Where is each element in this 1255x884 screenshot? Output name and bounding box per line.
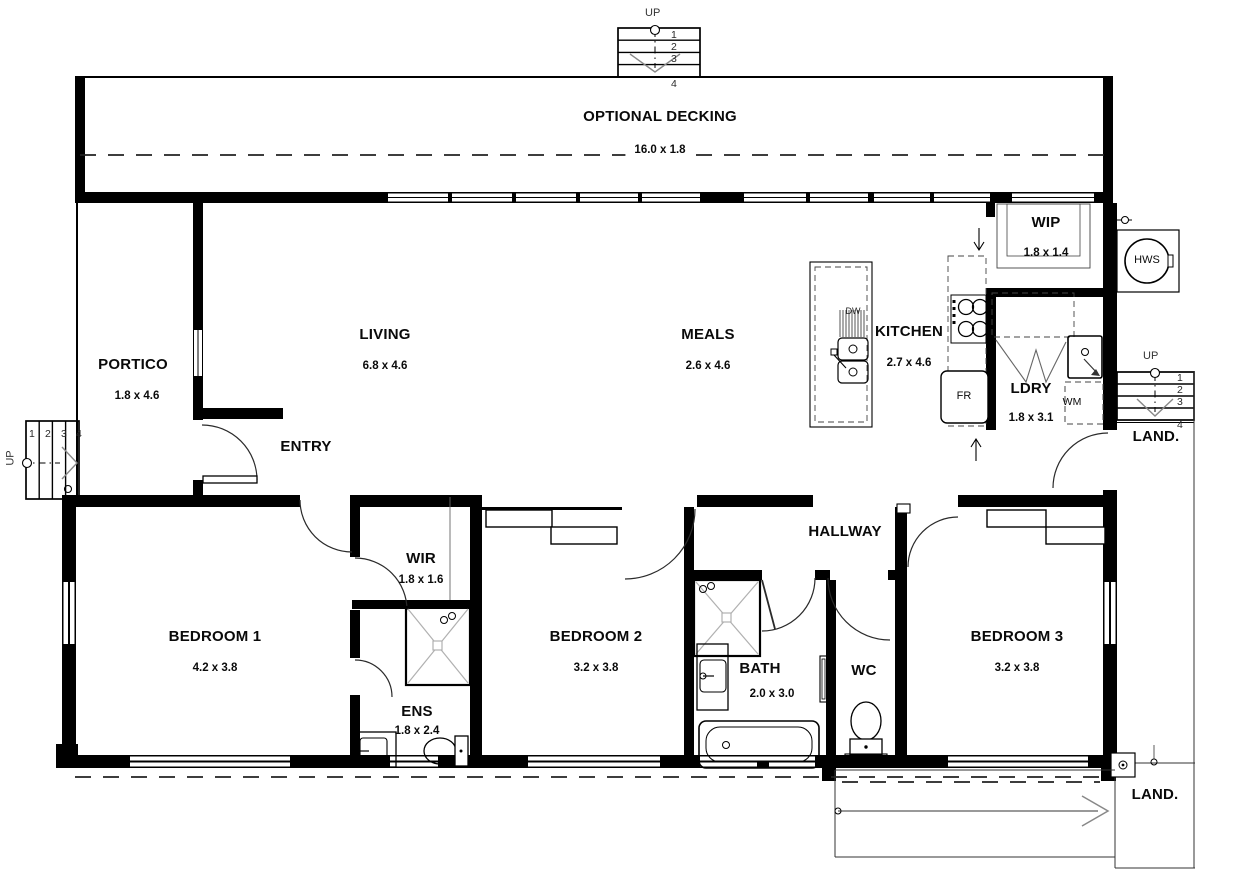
room-dims-bath: 2.0 x 3.0 xyxy=(750,688,795,700)
toilet-wc xyxy=(845,702,887,761)
stairs-right-up-label: UP xyxy=(1143,350,1158,362)
landing-label-bottom: LAND. xyxy=(1132,786,1179,803)
room-label-living: LIVING xyxy=(359,326,410,343)
room-label-ens: ENS xyxy=(401,703,432,720)
room-label-bedroom3: BEDROOM 3 xyxy=(971,628,1064,645)
deck-dims: 16.0 x 1.8 xyxy=(625,144,694,156)
room-label-hallway: HALLWAY xyxy=(808,523,881,540)
room-label-ldry: LDRY xyxy=(1010,380,1051,397)
door-arc-entry xyxy=(202,425,257,483)
stairs-left-step: 4 xyxy=(76,428,82,440)
hanging-rail-icon xyxy=(996,340,1066,382)
vanity-ens xyxy=(354,732,396,767)
stairs-right-step: 2 xyxy=(1177,384,1183,396)
cooktop-icon xyxy=(951,295,988,343)
ramp xyxy=(835,770,1115,857)
ldry-cupboard xyxy=(992,293,1074,337)
stairs-left-step: 1 xyxy=(29,428,35,440)
room-label-entry: ENTRY xyxy=(280,438,331,455)
door-arc-wc xyxy=(828,578,890,640)
floor-plan: OPTIONAL DECKING 16.0 x 1.8 PORTICO 1.8 … xyxy=(0,0,1255,884)
stairs-left-step: 2 xyxy=(45,428,51,440)
room-dims-wip: 1.8 x 1.4 xyxy=(1024,247,1069,259)
towel-rail xyxy=(820,656,827,702)
stairs-top-glyph xyxy=(618,26,700,78)
flow-arrow-down-icon xyxy=(974,228,984,250)
stairs-top-step: 4 xyxy=(671,78,677,90)
stairs-top-step: 2 xyxy=(671,41,677,53)
room-label-portico: PORTICO xyxy=(98,356,168,373)
dishwasher-label: DW xyxy=(846,306,861,316)
shower-ens xyxy=(406,607,470,685)
deck-label: OPTIONAL DECKING xyxy=(583,108,737,125)
stairs-top-up-label: UP xyxy=(645,7,660,19)
toilet-ens xyxy=(424,736,468,766)
door-arc-bedroom3 xyxy=(897,504,958,567)
room-label-kitchen: KITCHEN xyxy=(875,323,943,340)
room-dims-living: 6.8 x 4.6 xyxy=(363,360,408,372)
stairs-right-step: 3 xyxy=(1177,396,1183,408)
stairs-right-step: 4 xyxy=(1177,419,1183,431)
door-arc-bedroom2 xyxy=(625,509,695,579)
laundry-tub-icon xyxy=(1068,336,1102,378)
room-dims-ldry: 1.8 x 3.1 xyxy=(1009,412,1054,424)
stairs-top-step: 3 xyxy=(671,53,677,65)
plan-linework xyxy=(0,0,1255,884)
room-label-bedroom2: BEDROOM 2 xyxy=(550,628,643,645)
room-dims-bedroom3: 3.2 x 3.8 xyxy=(995,662,1040,674)
landing-label-right: LAND. xyxy=(1133,428,1180,445)
door-arc-ldry xyxy=(1053,433,1108,488)
stairs-left-up-label: UP xyxy=(5,450,17,465)
room-dims-bedroom2: 3.2 x 3.8 xyxy=(574,662,619,674)
sink-double-icon xyxy=(831,338,868,383)
room-dims-meals: 2.6 x 4.6 xyxy=(686,360,731,372)
vanity-bath xyxy=(697,644,728,710)
room-label-wc: WC xyxy=(851,662,876,679)
room-label-wir: WIR xyxy=(406,550,436,567)
robe-bedroom3 xyxy=(987,510,1105,544)
room-label-bath: BATH xyxy=(739,660,780,677)
fridge-label: FR xyxy=(957,390,972,402)
door-arc-ens xyxy=(355,660,392,697)
robe-bedroom2 xyxy=(486,510,617,544)
room-dims-wir: 1.8 x 1.6 xyxy=(399,574,444,586)
bathtub xyxy=(699,721,819,768)
room-dims-kitchen: 2.7 x 4.6 xyxy=(887,357,932,369)
room-label-bedroom1: BEDROOM 1 xyxy=(169,628,262,645)
stairs-right-step: 1 xyxy=(1177,372,1183,384)
room-dims-ens: 1.8 x 2.4 xyxy=(395,725,440,737)
hws-label: HWS xyxy=(1134,254,1160,266)
room-label-wip: WIP xyxy=(1032,214,1061,231)
stairs-left-step: 3 xyxy=(61,428,67,440)
door-arc-bedroom1 xyxy=(300,500,352,552)
dashed-setout-lines xyxy=(75,155,1110,777)
washing-machine-label: WM xyxy=(1063,396,1082,408)
room-dims-portico: 1.8 x 4.6 xyxy=(115,390,160,402)
room-label-meals: MEALS xyxy=(681,326,735,343)
door-arc-bath xyxy=(762,578,815,631)
flow-arrow-up-icon xyxy=(971,439,981,461)
island-bench xyxy=(810,262,872,427)
room-dims-bedroom1: 4.2 x 3.8 xyxy=(193,662,238,674)
stairs-top-step: 1 xyxy=(671,29,677,41)
deck-dims-text: 16.0 x 1.8 xyxy=(625,144,694,156)
